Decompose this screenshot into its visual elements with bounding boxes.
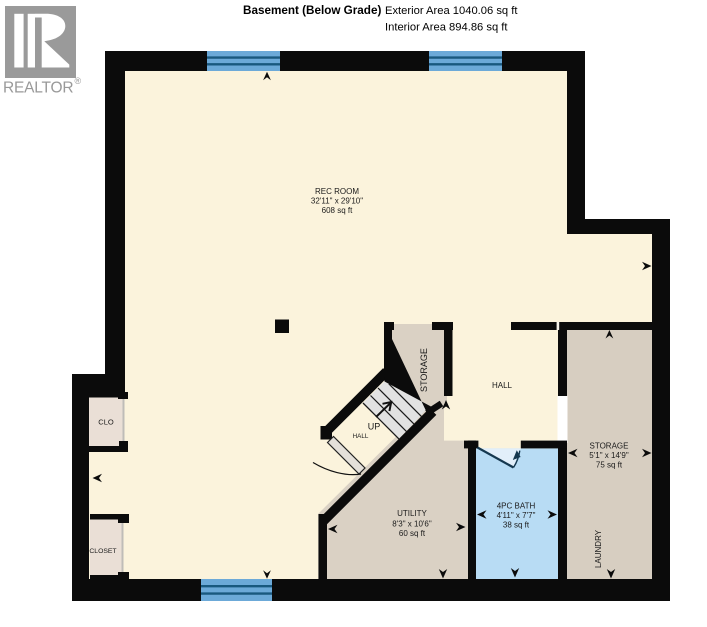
- svg-text:®: ®: [75, 76, 82, 86]
- svg-text:8'3" x 10'6": 8'3" x 10'6": [392, 520, 432, 529]
- svg-text:STORAGE: STORAGE: [590, 442, 629, 451]
- svg-text:4'11" x 7'7": 4'11" x 7'7": [497, 511, 536, 520]
- svg-text:UP: UP: [368, 422, 381, 432]
- svg-text:75 sq ft: 75 sq ft: [596, 461, 623, 470]
- svg-text:32'11" x 29'10": 32'11" x 29'10": [311, 197, 363, 206]
- svg-text:4PC BATH: 4PC BATH: [497, 502, 536, 511]
- svg-text:HALL: HALL: [353, 433, 369, 440]
- svg-text:REC ROOM: REC ROOM: [315, 187, 359, 196]
- svg-text:LAUNDRY: LAUNDRY: [594, 529, 603, 568]
- svg-text:REALTOR: REALTOR: [3, 80, 73, 97]
- svg-text:Basement (Below Grade): Basement (Below Grade): [243, 4, 381, 17]
- svg-text:608 sq ft: 608 sq ft: [322, 206, 353, 215]
- svg-text:Interior Area 894.86 sq ft: Interior Area 894.86 sq ft: [385, 22, 508, 34]
- svg-text:Exterior Area 1040.06 sq ft: Exterior Area 1040.06 sq ft: [385, 5, 518, 17]
- svg-text:HALL: HALL: [492, 381, 513, 390]
- svg-text:CLO: CLO: [98, 418, 114, 427]
- svg-text:STORAGE: STORAGE: [419, 348, 429, 392]
- svg-text:CLOSET: CLOSET: [89, 548, 116, 555]
- svg-text:5'1" x 14'9": 5'1" x 14'9": [589, 451, 629, 460]
- svg-text:60 sq ft: 60 sq ft: [399, 529, 426, 538]
- svg-text:UTILITY: UTILITY: [397, 509, 427, 518]
- svg-text:38 sq ft: 38 sq ft: [503, 521, 530, 530]
